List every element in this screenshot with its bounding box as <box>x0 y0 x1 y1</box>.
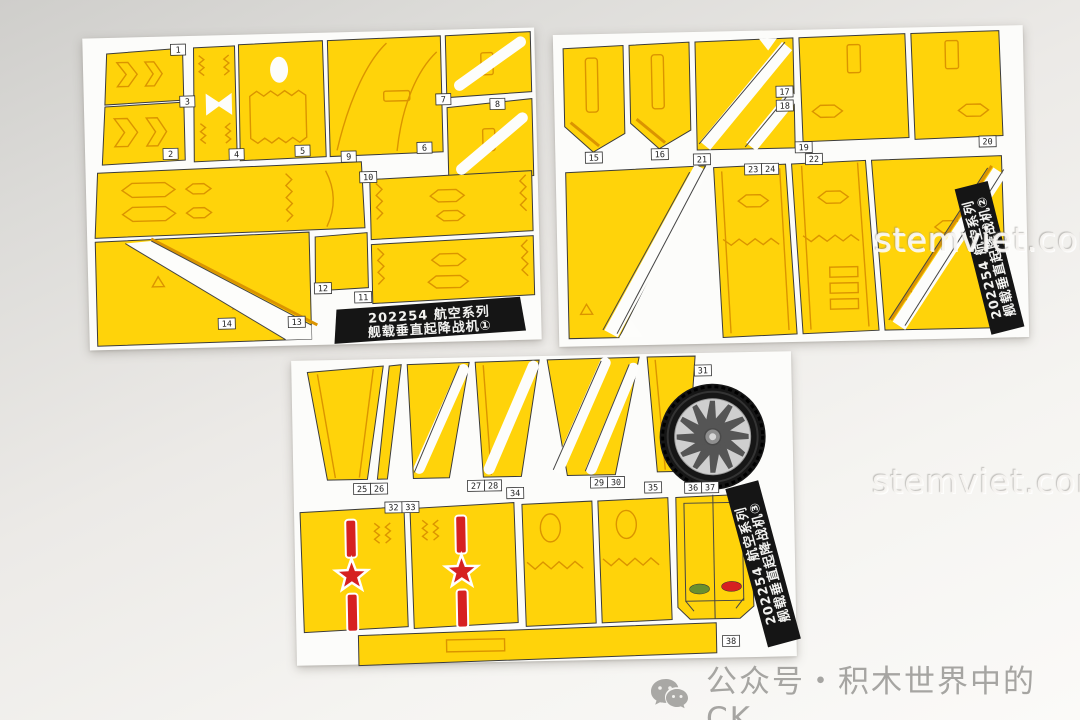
piece-number-tab: 36 <box>685 482 702 494</box>
sheet3-bottom-pieces <box>300 494 755 667</box>
piece-number-tab: 28 <box>484 480 501 492</box>
piece-number-tab: 31 <box>694 365 711 377</box>
piece-number-tab: 9 <box>341 151 356 163</box>
svg-text:8: 8 <box>495 100 500 110</box>
sheet3-fin-pieces <box>307 356 697 480</box>
red-light-sticker <box>721 581 741 591</box>
piece-number-tab: 6 <box>417 142 432 154</box>
svg-text:30: 30 <box>611 478 621 488</box>
svg-text:14: 14 <box>222 319 232 329</box>
svg-text:3: 3 <box>185 97 190 107</box>
svg-text:21: 21 <box>697 155 707 165</box>
svg-text:37: 37 <box>705 483 715 493</box>
svg-text:4: 4 <box>234 150 239 160</box>
svg-text:1: 1 <box>175 46 180 56</box>
svg-text:38: 38 <box>726 637 736 647</box>
sheet3-artwork: 202254 航空系列 舰载垂直起降战机③ 25 26 27 28 29 30 … <box>291 351 797 666</box>
piece-number-tab: 12 <box>314 283 331 295</box>
svg-text:13: 13 <box>292 318 302 328</box>
svg-text:10: 10 <box>363 173 373 183</box>
footer-text: 公众号・积木世界中的CK <box>706 656 1080 720</box>
sticker-sheet-3: 202254 航空系列 舰载垂直起降战机③ 25 26 27 28 29 30 … <box>291 351 797 666</box>
sheet1-label: 202254 航空系列 舰载垂直起降战机① <box>332 297 526 344</box>
piece-number-tab: 14 <box>218 318 235 330</box>
piece-number-tab: 8 <box>490 98 505 110</box>
piece-number-tab: 21 <box>693 154 710 166</box>
svg-text:9: 9 <box>346 153 351 163</box>
piece-number-tab: 29 <box>590 477 607 489</box>
sticker-sheet-2: 202254 航空系列 舰载垂直起降战机② 15 16 17 18 19 20 … <box>553 25 1029 347</box>
photo-stage: 202254 航空系列 舰载垂直起降战机① 1 2 3 4 5 6 7 8 9 … <box>0 0 1080 720</box>
svg-text:6: 6 <box>422 144 427 154</box>
watermark-text: stemviet.com <box>872 462 1080 501</box>
svg-text:5: 5 <box>300 147 305 157</box>
watermark-text: stemviet.com <box>874 220 1080 259</box>
piece-number-tab: 11 <box>355 292 372 304</box>
piece-number-tab: 38 <box>722 635 739 647</box>
piece-number-tab: 35 <box>645 482 662 494</box>
svg-text:31: 31 <box>698 366 708 376</box>
piece-number-tab: 19 <box>795 142 812 154</box>
piece-number-tab: 20 <box>979 136 996 148</box>
green-light-sticker <box>689 584 709 594</box>
piece-number-tab: 24 <box>762 163 779 175</box>
piece-number-tab: 4 <box>229 149 244 161</box>
svg-text:23: 23 <box>748 165 758 175</box>
svg-text:2: 2 <box>168 150 173 160</box>
svg-text:35: 35 <box>648 483 658 493</box>
sticker-sheet-1: 202254 航空系列 舰载垂直起降战机① 1 2 3 4 5 6 7 8 9 … <box>82 28 541 351</box>
piece-number-tab: 17 <box>776 86 793 98</box>
svg-text:17: 17 <box>779 88 789 98</box>
svg-text:18: 18 <box>780 102 790 112</box>
piece-number-tab: 25 <box>353 483 370 495</box>
svg-text:15: 15 <box>589 154 599 164</box>
svg-text:34: 34 <box>510 489 520 499</box>
svg-text:29: 29 <box>594 478 604 488</box>
svg-text:36: 36 <box>688 484 698 494</box>
svg-text:11: 11 <box>358 293 368 303</box>
piece-number-tab: 5 <box>295 145 310 157</box>
piece-number-tab: 22 <box>805 153 822 165</box>
piece-number-tab: 27 <box>467 480 484 492</box>
svg-text:24: 24 <box>765 165 775 175</box>
piece-number-tab: 1 <box>170 44 185 56</box>
piece-number-tab: 34 <box>507 487 524 499</box>
svg-text:16: 16 <box>655 150 665 160</box>
svg-text:32: 32 <box>388 503 398 513</box>
piece-number-tab: 33 <box>402 501 419 513</box>
svg-text:25: 25 <box>357 485 367 495</box>
piece-number-tab: 16 <box>651 149 668 161</box>
piece-number-tab: 13 <box>288 316 305 328</box>
piece-number-tab: 30 <box>607 476 624 488</box>
piece-number-tab: 18 <box>776 100 793 112</box>
svg-text:12: 12 <box>318 284 328 294</box>
piece-number-tab: 37 <box>702 482 719 494</box>
piece-number-tab: 26 <box>370 483 387 495</box>
piece-number-tab: 15 <box>585 152 602 164</box>
svg-text:7: 7 <box>441 95 446 105</box>
svg-text:19: 19 <box>798 143 808 153</box>
piece-number-tab: 32 <box>385 502 402 514</box>
piece-number-tab: 10 <box>360 171 377 183</box>
piece-number-tab: 7 <box>436 94 451 106</box>
sheet1-artwork: 202254 航空系列 舰载垂直起降战机① 1 2 3 4 5 6 7 8 9 … <box>82 28 541 351</box>
footer-credit: 公众号・积木世界中的CK <box>648 656 1080 720</box>
svg-text:22: 22 <box>809 155 819 165</box>
svg-text:28: 28 <box>488 481 498 491</box>
svg-text:33: 33 <box>405 503 415 513</box>
svg-text:20: 20 <box>982 137 992 147</box>
wechat-icon <box>648 675 696 719</box>
svg-text:26: 26 <box>374 485 384 495</box>
piece-number-tab: 3 <box>180 96 195 108</box>
sheet2-artwork: 202254 航空系列 舰载垂直起降战机② 15 16 17 18 19 20 … <box>553 25 1029 347</box>
svg-text:27: 27 <box>471 482 481 492</box>
piece-number-tab: 23 <box>745 164 762 176</box>
piece-number-tab: 2 <box>163 148 178 160</box>
